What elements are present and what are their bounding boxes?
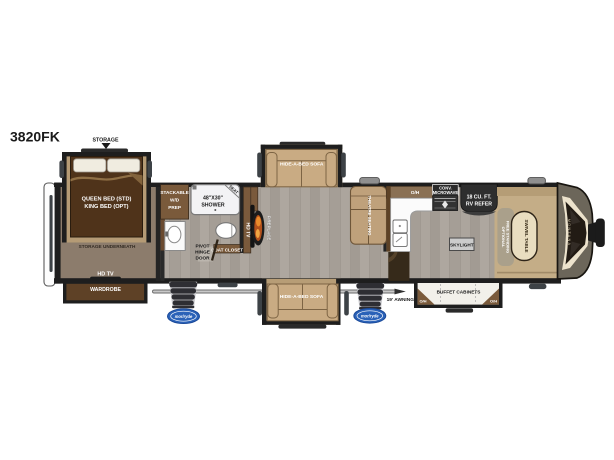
svg-text:3820FK: 3820FK bbox=[10, 129, 60, 145]
svg-text:MONTANA: MONTANA bbox=[567, 219, 572, 247]
svg-text:BUFFET CABINETS: BUFFET CABINETS bbox=[437, 290, 481, 295]
svg-text:KING BED (OPT): KING BED (OPT) bbox=[84, 204, 128, 210]
svg-text:STORAGE: STORAGE bbox=[92, 138, 119, 144]
svg-text:19' AWNING: 19' AWNING bbox=[387, 297, 415, 303]
svg-text:FIREPLACE: FIREPLACE bbox=[266, 216, 271, 241]
svg-text:SWIVEL TABLE: SWIVEL TABLE bbox=[524, 219, 529, 252]
svg-text:STACKABLE: STACKABLE bbox=[160, 190, 189, 195]
svg-text:HIDE-A-BED SOFA: HIDE-A-BED SOFA bbox=[280, 162, 324, 168]
svg-text:SHOWER: SHOWER bbox=[201, 203, 225, 209]
svg-text:RV REFER: RV REFER bbox=[466, 202, 492, 208]
svg-text:SKYLIGHT: SKYLIGHT bbox=[450, 242, 474, 247]
svg-text:DOOR: DOOR bbox=[195, 256, 210, 261]
svg-text:HINGE: HINGE bbox=[195, 250, 210, 255]
svg-text:QUEEN BED (STD): QUEEN BED (STD) bbox=[82, 197, 132, 203]
svg-text:STORAGE UNDERNEATH: STORAGE UNDERNEATH bbox=[79, 244, 136, 249]
svg-text:THEATRE SEATING: THEATRE SEATING bbox=[367, 196, 372, 237]
svg-text:O/H: O/H bbox=[490, 299, 497, 304]
svg-text:PIVOT: PIVOT bbox=[195, 244, 209, 249]
svg-text:OPTIONAL: OPTIONAL bbox=[501, 227, 506, 248]
svg-text:MICROWAVE: MICROWAVE bbox=[433, 190, 459, 195]
svg-text:O/H: O/H bbox=[419, 299, 426, 304]
svg-text:O/H: O/H bbox=[411, 190, 420, 196]
svg-text:HIDE-A-BED SOFA: HIDE-A-BED SOFA bbox=[280, 294, 324, 300]
svg-text:18 CU. FT.: 18 CU. FT. bbox=[467, 195, 492, 201]
svg-text:FREE STANDING: FREE STANDING bbox=[506, 221, 511, 253]
svg-text:48"X30": 48"X30" bbox=[203, 196, 223, 202]
svg-text:W/D: W/D bbox=[170, 198, 180, 203]
svg-text:mor/ryde: mor/ryde bbox=[361, 314, 379, 319]
svg-text:HD TV: HD TV bbox=[244, 223, 250, 239]
svg-text:PREP: PREP bbox=[168, 205, 181, 210]
svg-text:mor/ryde: mor/ryde bbox=[175, 314, 193, 319]
svg-text:WARDROBE: WARDROBE bbox=[90, 287, 121, 293]
